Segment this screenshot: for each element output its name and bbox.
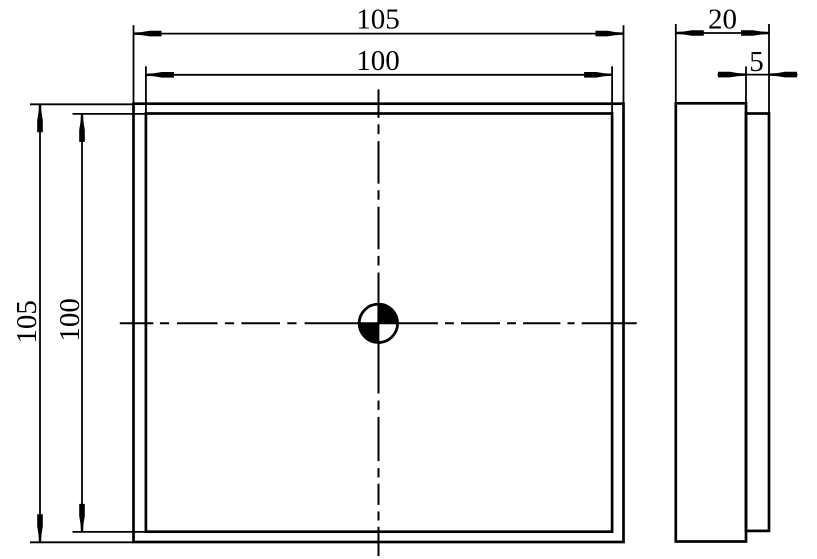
svg-text:20: 20 bbox=[708, 4, 737, 36]
svg-text:105: 105 bbox=[356, 4, 400, 36]
svg-text:100: 100 bbox=[356, 45, 400, 77]
svg-text:100: 100 bbox=[54, 298, 86, 342]
svg-text:105: 105 bbox=[11, 300, 43, 344]
svg-text:5: 5 bbox=[749, 46, 764, 78]
